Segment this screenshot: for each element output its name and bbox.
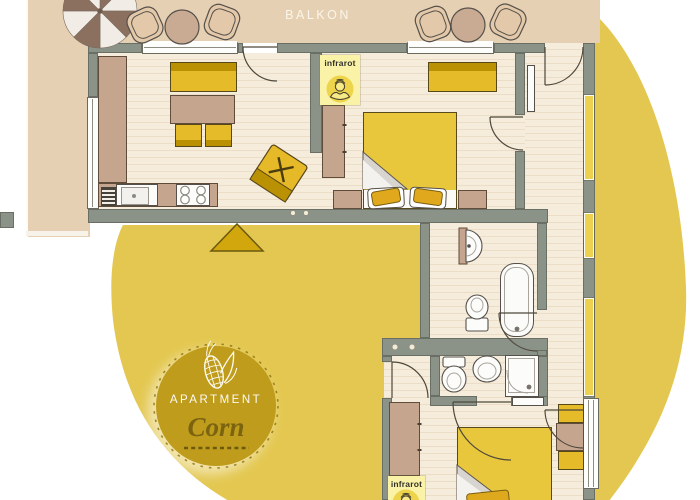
corn-cob-icon [198, 336, 242, 390]
wall [238, 43, 243, 53]
bench-backrest [429, 63, 496, 71]
window-glass [584, 298, 594, 396]
sink-basin [121, 187, 149, 205]
window [583, 398, 599, 489]
chair-seat-edge [176, 140, 201, 146]
radiator [527, 65, 535, 112]
wall [420, 223, 430, 338]
chair-seat-edge [206, 140, 231, 146]
bathtub-inner [504, 267, 529, 332]
wall [382, 338, 548, 356]
desk-chair [558, 404, 584, 423]
window-mullion [409, 47, 492, 48]
desk [556, 423, 584, 451]
desk-chair [558, 451, 584, 470]
wall [88, 53, 98, 97]
window-glass [584, 95, 594, 180]
shower-inner [508, 358, 535, 393]
wall [382, 356, 392, 362]
shower-threshold-mat [512, 397, 544, 406]
balcony-label: BALKON [283, 8, 353, 22]
wall-hooks [291, 211, 415, 350]
wall [88, 209, 548, 223]
sofa-backrest [171, 63, 236, 71]
wall [277, 43, 407, 53]
infrared-sauna-badge: infrarot [320, 55, 360, 105]
infrared-label: infrarot [388, 479, 425, 489]
nightstand [458, 190, 487, 209]
shower [505, 355, 539, 397]
badge-name: Corn [187, 412, 244, 442]
window-mullion [588, 400, 589, 487]
floor-plan: APARTMENT Corn BALKON [0, 0, 700, 500]
badge-circle [156, 346, 276, 466]
wall [430, 356, 440, 396]
wall [515, 53, 525, 115]
dining-table [170, 95, 235, 124]
window-glass [584, 213, 594, 258]
oven-grill [101, 187, 116, 206]
window-mullion [593, 400, 594, 487]
bed-duvet [364, 113, 456, 190]
wall [537, 223, 547, 310]
balcony-edge-line [26, 231, 88, 236]
double-bed [457, 427, 552, 500]
window-mullion [92, 99, 93, 207]
kitchen-counter-left [98, 56, 127, 183]
badge-kicker: APARTMENT [170, 394, 262, 406]
bed-mattress [364, 190, 456, 208]
apartment-badge: APARTMENT Corn [148, 336, 278, 474]
railing-end-post [0, 212, 14, 228]
balcony-left-wing [26, 43, 90, 237]
nightstand [333, 190, 362, 209]
stove [176, 184, 210, 206]
wall [515, 151, 525, 209]
double-bed [363, 112, 457, 209]
wall [88, 43, 142, 53]
wardrobe [322, 105, 345, 178]
wall [430, 396, 477, 406]
window-mullion [144, 47, 236, 48]
wardrobe [389, 402, 420, 476]
infrared-label: infrarot [320, 58, 360, 68]
triangle-arrow-icon [211, 224, 263, 251]
wall [494, 43, 545, 53]
infrared-sauna-badge: infrarot [388, 476, 425, 500]
bathtub [500, 263, 534, 337]
